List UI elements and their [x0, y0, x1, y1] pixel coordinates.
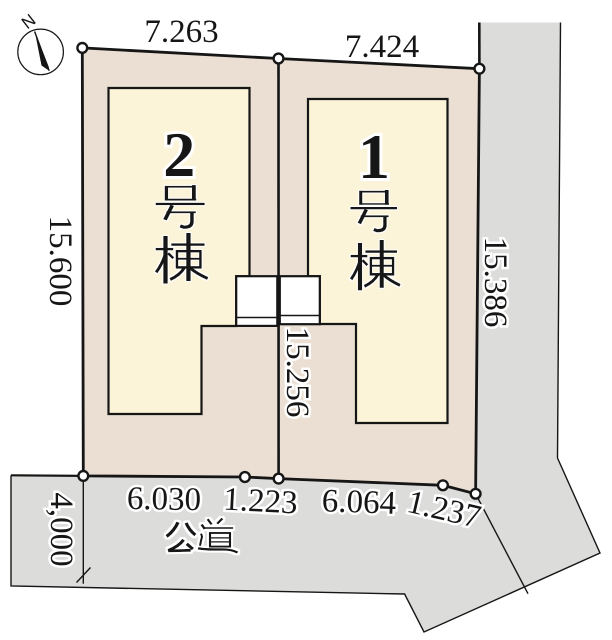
svg-text:4,000: 4,000	[43, 492, 79, 566]
svg-text:1.223: 1.223	[222, 482, 298, 522]
svg-text:6.030: 6.030	[127, 481, 202, 518]
svg-text:6.064: 6.064	[321, 483, 396, 522]
svg-text:2: 2	[163, 119, 195, 190]
svg-text:15.386: 15.386	[477, 237, 513, 328]
svg-text:7.263: 7.263	[144, 14, 218, 50]
svg-text:1: 1	[358, 121, 390, 192]
svg-text:15.256: 15.256	[279, 327, 315, 418]
svg-text:15.600: 15.600	[42, 216, 78, 307]
svg-text:7.424: 7.424	[345, 29, 419, 65]
